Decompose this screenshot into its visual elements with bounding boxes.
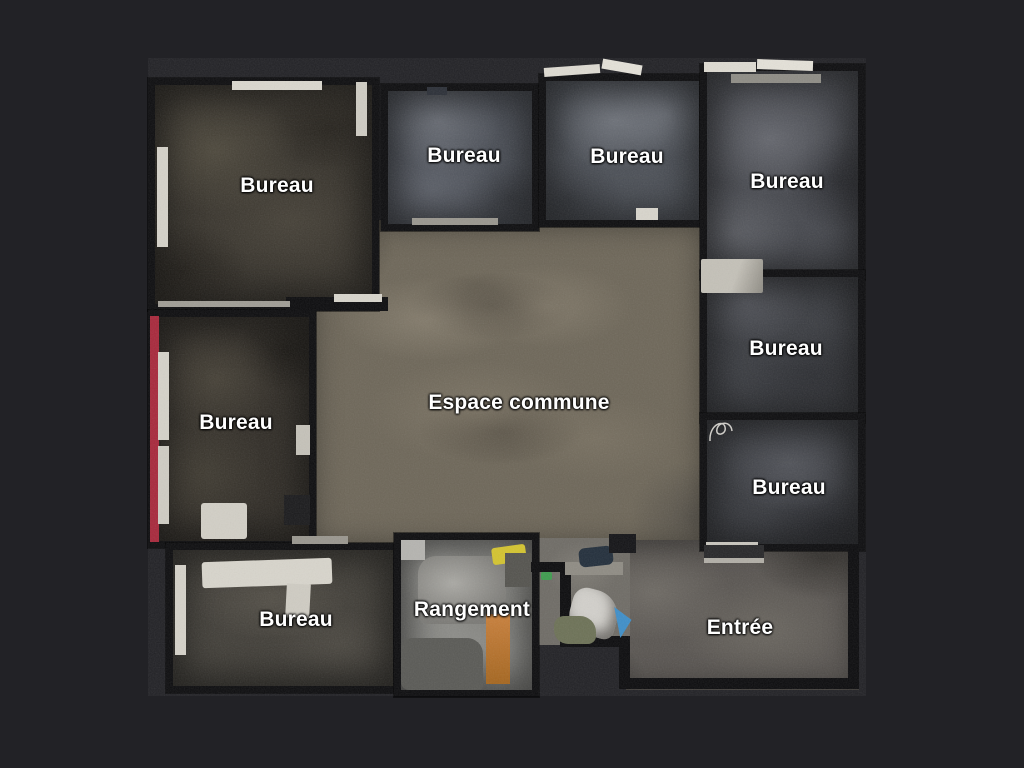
- desk-top-right-room: [701, 259, 763, 293]
- desk-bottom-left-room-bar: [202, 558, 333, 589]
- window-sill-top-left-room-top: [232, 81, 322, 90]
- room-label-bureau-top-mid-right: Bureau: [590, 145, 664, 169]
- ledge-espace-stub: [334, 294, 382, 302]
- window-sill-top-right-room-1: [704, 62, 756, 72]
- green-dot-espace-nook: [541, 572, 552, 580]
- room-label-entree: Entrée: [707, 616, 774, 640]
- dark-box-top-mid-left-room: [427, 87, 447, 95]
- door-leaf-top-mid-right-room: [636, 208, 658, 220]
- window-sill-left-middle-room-1: [158, 352, 169, 440]
- desk-left-middle-room: [201, 503, 247, 539]
- wire-scribble-right-lower-room: [707, 417, 737, 445]
- ledge-top-right-room: [731, 74, 821, 83]
- window-sill-top-left-room-left: [157, 147, 168, 247]
- window-sill-left-middle-room-2: [158, 446, 169, 524]
- window-sill-top-right-room-2: [757, 59, 813, 71]
- shelf-rangement: [505, 553, 531, 587]
- ledge-top-left-room-bottom: [158, 301, 290, 307]
- dark-desk-entree: [704, 545, 764, 559]
- room-label-espace-commune: Espace commune: [428, 391, 609, 415]
- room-label-bureau-bottom-left: Bureau: [259, 608, 333, 632]
- radiator-bottom-left-room: [175, 565, 186, 655]
- orange-door-rangement: [486, 614, 510, 684]
- ledge-bottom-left-room-top: [292, 536, 348, 544]
- dark-floor-patch-rangement: [401, 638, 483, 690]
- wall-entree-right: [848, 546, 859, 689]
- room-label-bureau-top-left: Bureau: [240, 174, 314, 198]
- floorplan-stage: Bureau Bureau Bureau Bureau Bureau Burea…: [0, 0, 1024, 768]
- window-sill-top-mid-right-room-2: [601, 59, 642, 76]
- green-pile-espace-nook: [554, 616, 596, 644]
- room-label-rangement: Rangement: [414, 598, 530, 622]
- light-patch-rangement: [401, 540, 425, 560]
- room-label-bureau-right-lower: Bureau: [752, 476, 826, 500]
- room-label-bureau-right-middle: Bureau: [749, 337, 823, 361]
- room-label-bureau-left-middle: Bureau: [199, 411, 273, 435]
- room-label-bureau-top-mid-left: Bureau: [427, 144, 501, 168]
- room-label-bureau-top-right: Bureau: [750, 170, 824, 194]
- dark-box-espace-nook: [609, 534, 636, 553]
- ledge-top-mid-left-room: [412, 218, 498, 225]
- white-strip-top-left-room-corner: [356, 82, 367, 136]
- dark-desk-entree-edge: [704, 558, 764, 563]
- white-ledge-left-middle-room-wall: [296, 425, 310, 455]
- dark-box-left-middle-room: [284, 495, 310, 525]
- wall-entree-bottom: [619, 678, 859, 689]
